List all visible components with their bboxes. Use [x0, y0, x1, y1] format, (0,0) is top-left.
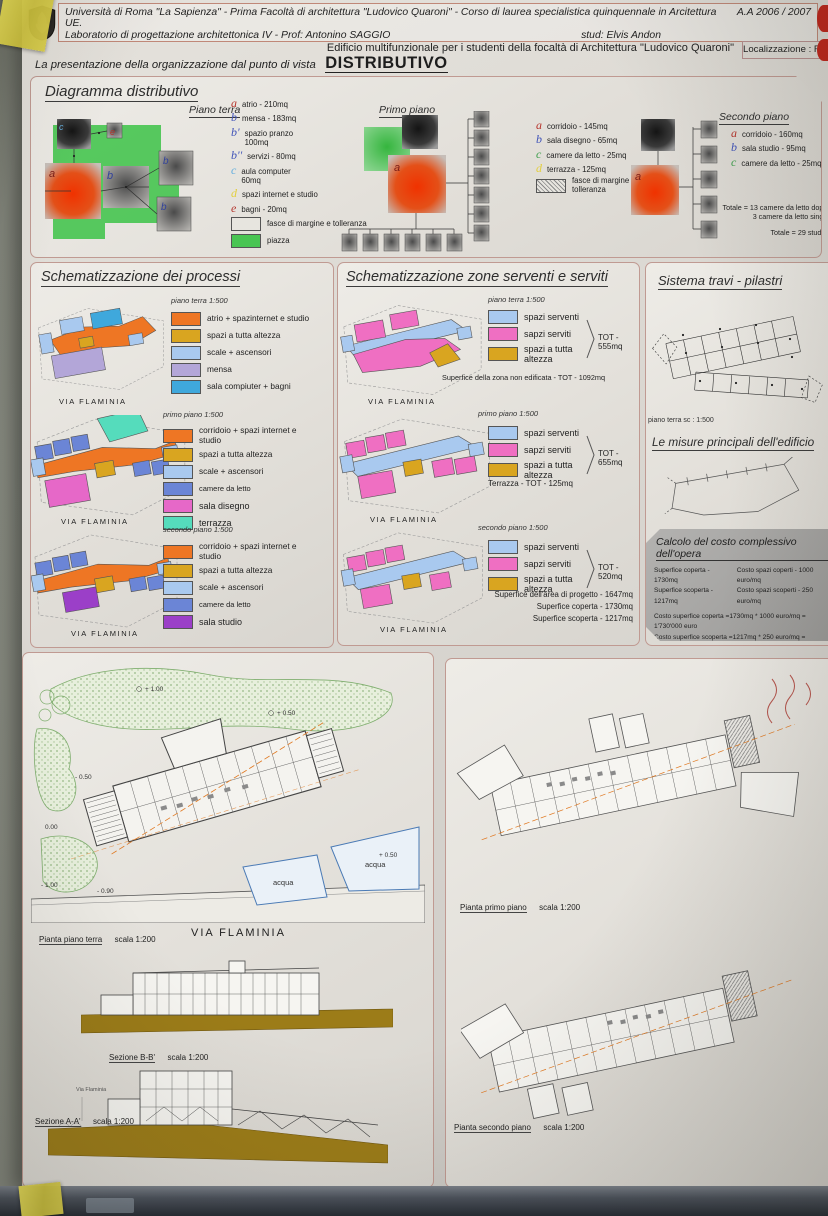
note: Terrazza - TOT - 125mq — [488, 479, 628, 488]
cost-col-prices: Costo spazi coperti - 1000 euro/mq Costo… — [737, 566, 825, 607]
surface-totals: Superfice dell'area di progetto - 1647mq… — [433, 589, 633, 625]
svg-text:e: e — [110, 127, 115, 137]
secondo-piano-plan-drawing — [461, 937, 816, 1137]
cost-title: Calcolo del costo complessivo dell'opera — [656, 536, 828, 561]
svg-text:b: b — [107, 170, 113, 182]
student-name: stud: Elvis Andon — [581, 30, 661, 41]
floor-reflection — [86, 1198, 134, 1213]
section-title: Le misure principali dell'edificio — [652, 435, 814, 451]
plan-caption: Pianta primo piano scala 1:200 — [460, 897, 580, 915]
totals-secondo-piano: Totale = 13 camere da letto doppie 3 cam… — [707, 203, 822, 237]
photo-of-poster: Università di Roma "La Sapienza" - Prima… — [0, 0, 828, 1216]
acqua-label: acqua — [365, 860, 386, 869]
masking-tape — [18, 1182, 63, 1216]
diagram-piano-terra: a b b b e c — [41, 111, 226, 251]
cost-col-surfaces: Superfice coperta - 1730mq Superfice sco… — [654, 566, 727, 607]
panel-processi: Schematizzazione dei processi piano terr… — [30, 262, 334, 648]
caption: secondo piano 1:500 — [478, 523, 548, 532]
caption: piano terra sc : 1:500 — [648, 417, 714, 424]
svg-text:c: c — [59, 122, 64, 132]
legend-zone-primo: spazi serventi sapzi serviti spazi a tut… — [488, 423, 636, 484]
elev-label: + 0.50 — [379, 852, 398, 859]
panel-diagramma-distributivo: Diagramma distributivo Piano terra a b b… — [30, 76, 822, 258]
bracket — [586, 549, 596, 589]
header-box: Università di Roma "La Sapienza" - Prima… — [58, 3, 818, 42]
street-label: VIA FLAMINIA — [368, 397, 436, 406]
legend-item: scale + ascensori — [163, 581, 329, 595]
plan-thumb-processi-terra — [35, 301, 167, 397]
plan-thumb-zone-terra — [340, 301, 485, 399]
legend-item: camere da letto — [163, 598, 329, 612]
legend-item: scale + ascensori — [163, 465, 329, 479]
legend-item: corridoio + spazi internet e studio — [163, 542, 329, 561]
legend-item: camere da letto — [163, 482, 329, 496]
academic-year: A.A 2006 / 2007 — [737, 7, 811, 29]
legend-item: mensa — [171, 363, 329, 377]
diagram-primo-piano: a — [336, 111, 511, 253]
section-title: Schematizzazione zone serventi e serviti — [346, 269, 608, 287]
poster-main-title: La presentazione della organizzazione da… — [35, 54, 448, 73]
swatch-hatch — [536, 179, 566, 193]
legend-item: spazi a tutta altezza — [163, 564, 329, 578]
structural-grid-drawing — [650, 301, 824, 417]
bracket — [586, 319, 596, 359]
legend-item: aatrio - 210mq — [231, 97, 371, 109]
cost-calculation-box: Calcolo del costo complessivo dell'opera… — [646, 529, 828, 641]
legend-item: scale + ascensori — [171, 346, 329, 360]
bracket — [586, 435, 596, 475]
primo-piano-plan-drawing — [454, 667, 821, 895]
section-bb-drawing — [81, 953, 393, 1045]
legend-item: spazi serventi — [488, 310, 636, 324]
legend-item: sala studio — [163, 615, 329, 629]
plan-thumb-zone-primo — [338, 415, 496, 517]
elev-label: 0.00 — [45, 824, 58, 831]
legend-item: acorridoio - 160mq — [731, 127, 822, 139]
section-title: Sistema travi - pilastri — [658, 273, 782, 290]
legend-zone-terra: spazi serventi sapzi serviti spazi a tut… — [488, 307, 636, 368]
plan-caption: Pianta secondo piano scala 1:200 — [454, 1117, 584, 1135]
section-title: Schematizzazione dei processi — [41, 269, 240, 287]
tot-label: TOT - 555mq — [598, 333, 636, 351]
street-label: VIA FLAMINIA — [370, 515, 438, 524]
legend-item: sala compiuter + bagni — [171, 380, 329, 394]
section-title: Diagramma distributivo — [45, 83, 198, 102]
swatch-outline — [231, 217, 261, 231]
panel-struttura: Sistema travi - pilastri piano terra sc … — [645, 262, 828, 646]
caption: piano terra 1:500 — [171, 296, 228, 305]
elev-label: - 0.90 — [97, 888, 114, 895]
panel-zone-serventi: Schematizzazione zone serventi e serviti… — [337, 262, 640, 646]
legend-item: atrio + spazinternet e studio — [171, 312, 329, 326]
street-label: VIA FLAMINIA — [71, 629, 139, 638]
sapienza-red-logo — [817, 39, 828, 61]
legend-processi-secondo: corridoio + spazi internet e studio spaz… — [163, 539, 329, 632]
plan-caption: Pianta piano terra scala 1:200 — [39, 929, 156, 947]
note: Superfice della zona non edificata - TOT… — [442, 373, 636, 382]
dimensions-drawing — [660, 457, 812, 525]
tot-label: TOT - 520mq — [598, 563, 636, 581]
university-line: Università di Roma "La Sapienza" - Prima… — [65, 7, 729, 29]
legend-item: corridoio + spazi internet e studio — [163, 426, 329, 445]
floor-name-secondo-piano: Secondo piano — [719, 111, 789, 125]
svg-text:a: a — [394, 162, 400, 174]
sapienza-red-logo — [817, 5, 828, 32]
legend-item: sala disegno — [163, 499, 329, 513]
legend-processi-primo: corridoio + spazi internet e studio spaz… — [163, 423, 329, 533]
elev-label: + 0.50 — [277, 710, 296, 717]
legend-item: ccamere da letto - 25mq — [731, 156, 822, 168]
street-label: VIA FLAMINIA — [191, 927, 286, 939]
street-label: VIA FLAMINIA — [380, 625, 448, 634]
svg-text:Via Flaminia: Via Flaminia — [76, 1087, 107, 1093]
cost-rows: Costo superfice coperta =1730mq * 1000 e… — [654, 612, 825, 646]
legend-processi-terra: atrio + spazinternet e studio spazi a tu… — [171, 309, 329, 397]
svg-text:a: a — [49, 168, 55, 180]
legend-item: spazi serventi — [488, 540, 636, 554]
site-plan-drawing: + 1.00 + 0.50 - 0.50 0.00 - 0.90 - 1.00 … — [31, 659, 425, 923]
street-label: VIA FLAMINIA — [61, 517, 129, 526]
street-label: VIA FLAMINIA — [59, 397, 127, 406]
svg-text:a: a — [635, 171, 641, 183]
acqua-label: acqua — [273, 878, 294, 887]
legend-item: spazi a tutta altezza — [163, 448, 329, 462]
location-box: Localizzazione : Roma — [742, 41, 826, 59]
presentation-poster: Università di Roma "La Sapienza" - Prima… — [22, 0, 828, 1190]
title-keyword: DISTRIBUTIVO — [325, 54, 447, 73]
swatch-piazza — [231, 234, 261, 248]
title-prefix: La presentazione della organizzazione da… — [35, 59, 316, 71]
legend-item: spazi a tutta altezza — [171, 329, 329, 343]
legend-item: bsala studio - 95mq — [731, 141, 822, 153]
panel-pianta-terra-sezioni: + 1.00 + 0.50 - 0.50 0.00 - 0.90 - 1.00 … — [22, 652, 434, 1188]
elev-label: - 0.50 — [75, 774, 92, 781]
lab-line: Laboratorio di progettazione architetton… — [65, 30, 390, 41]
legend-secondo-piano: acorridoio - 160mq bsala studio - 95mq c… — [731, 125, 822, 170]
caption: piano terra 1:500 — [488, 295, 545, 304]
project-subtitle: Edificio multifunzionale per i studenti … — [22, 42, 734, 54]
elev-label: + 1.00 — [145, 686, 164, 693]
elev-label: - 1.00 — [41, 882, 58, 889]
tot-label: TOT - 655mq — [598, 449, 636, 467]
panel-piante-piani: Pianta primo piano scala 1:200 Pianta se… — [445, 658, 828, 1188]
plan-thumb-processi-secondo — [31, 531, 181, 631]
svg-text:b: b — [161, 202, 167, 213]
legend-item: spazi serventi — [488, 426, 636, 440]
svg-text:b: b — [163, 156, 169, 167]
section-aa-caption: Sezione A-A' scala 1:200 — [35, 1111, 134, 1129]
